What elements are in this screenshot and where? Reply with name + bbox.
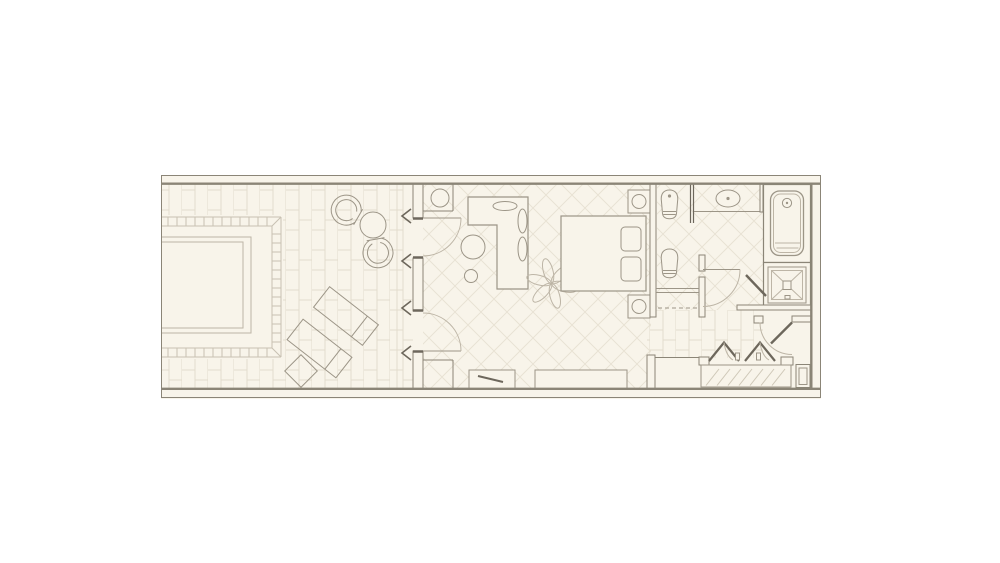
nightstand — [628, 190, 650, 213]
pillow — [621, 257, 641, 281]
shaft-wall — [647, 355, 655, 389]
counter-end-wall — [760, 184, 763, 212]
bar-stool-small — [465, 270, 478, 283]
door-jamb-wall — [699, 255, 705, 271]
toilet — [661, 249, 678, 278]
water-closet-toilet — [661, 190, 678, 219]
bifold-pivot — [736, 353, 740, 360]
bedroom-bathroom-wall — [650, 184, 656, 317]
shower-drain — [783, 281, 791, 290]
tub-faucet-dot — [786, 202, 788, 204]
corner-round-table — [431, 189, 449, 207]
bathroom-south-wall — [737, 305, 812, 310]
patio-round-table — [360, 212, 386, 238]
entry-jamb-left — [754, 316, 763, 323]
closet-jamb-right — [781, 357, 793, 365]
floor-plan-drawing — [0, 0, 1000, 563]
vanity-partition-wall — [699, 277, 705, 317]
entry-jamb-right — [792, 316, 811, 322]
bar-stool — [461, 235, 485, 259]
bench — [535, 370, 627, 389]
pillow — [621, 227, 641, 251]
floor-plan-canvas — [0, 0, 1000, 563]
bifold-pivot — [757, 353, 761, 360]
nightstand — [628, 295, 650, 318]
closet-jamb-left — [699, 357, 709, 365]
sink-faucet — [726, 197, 729, 200]
